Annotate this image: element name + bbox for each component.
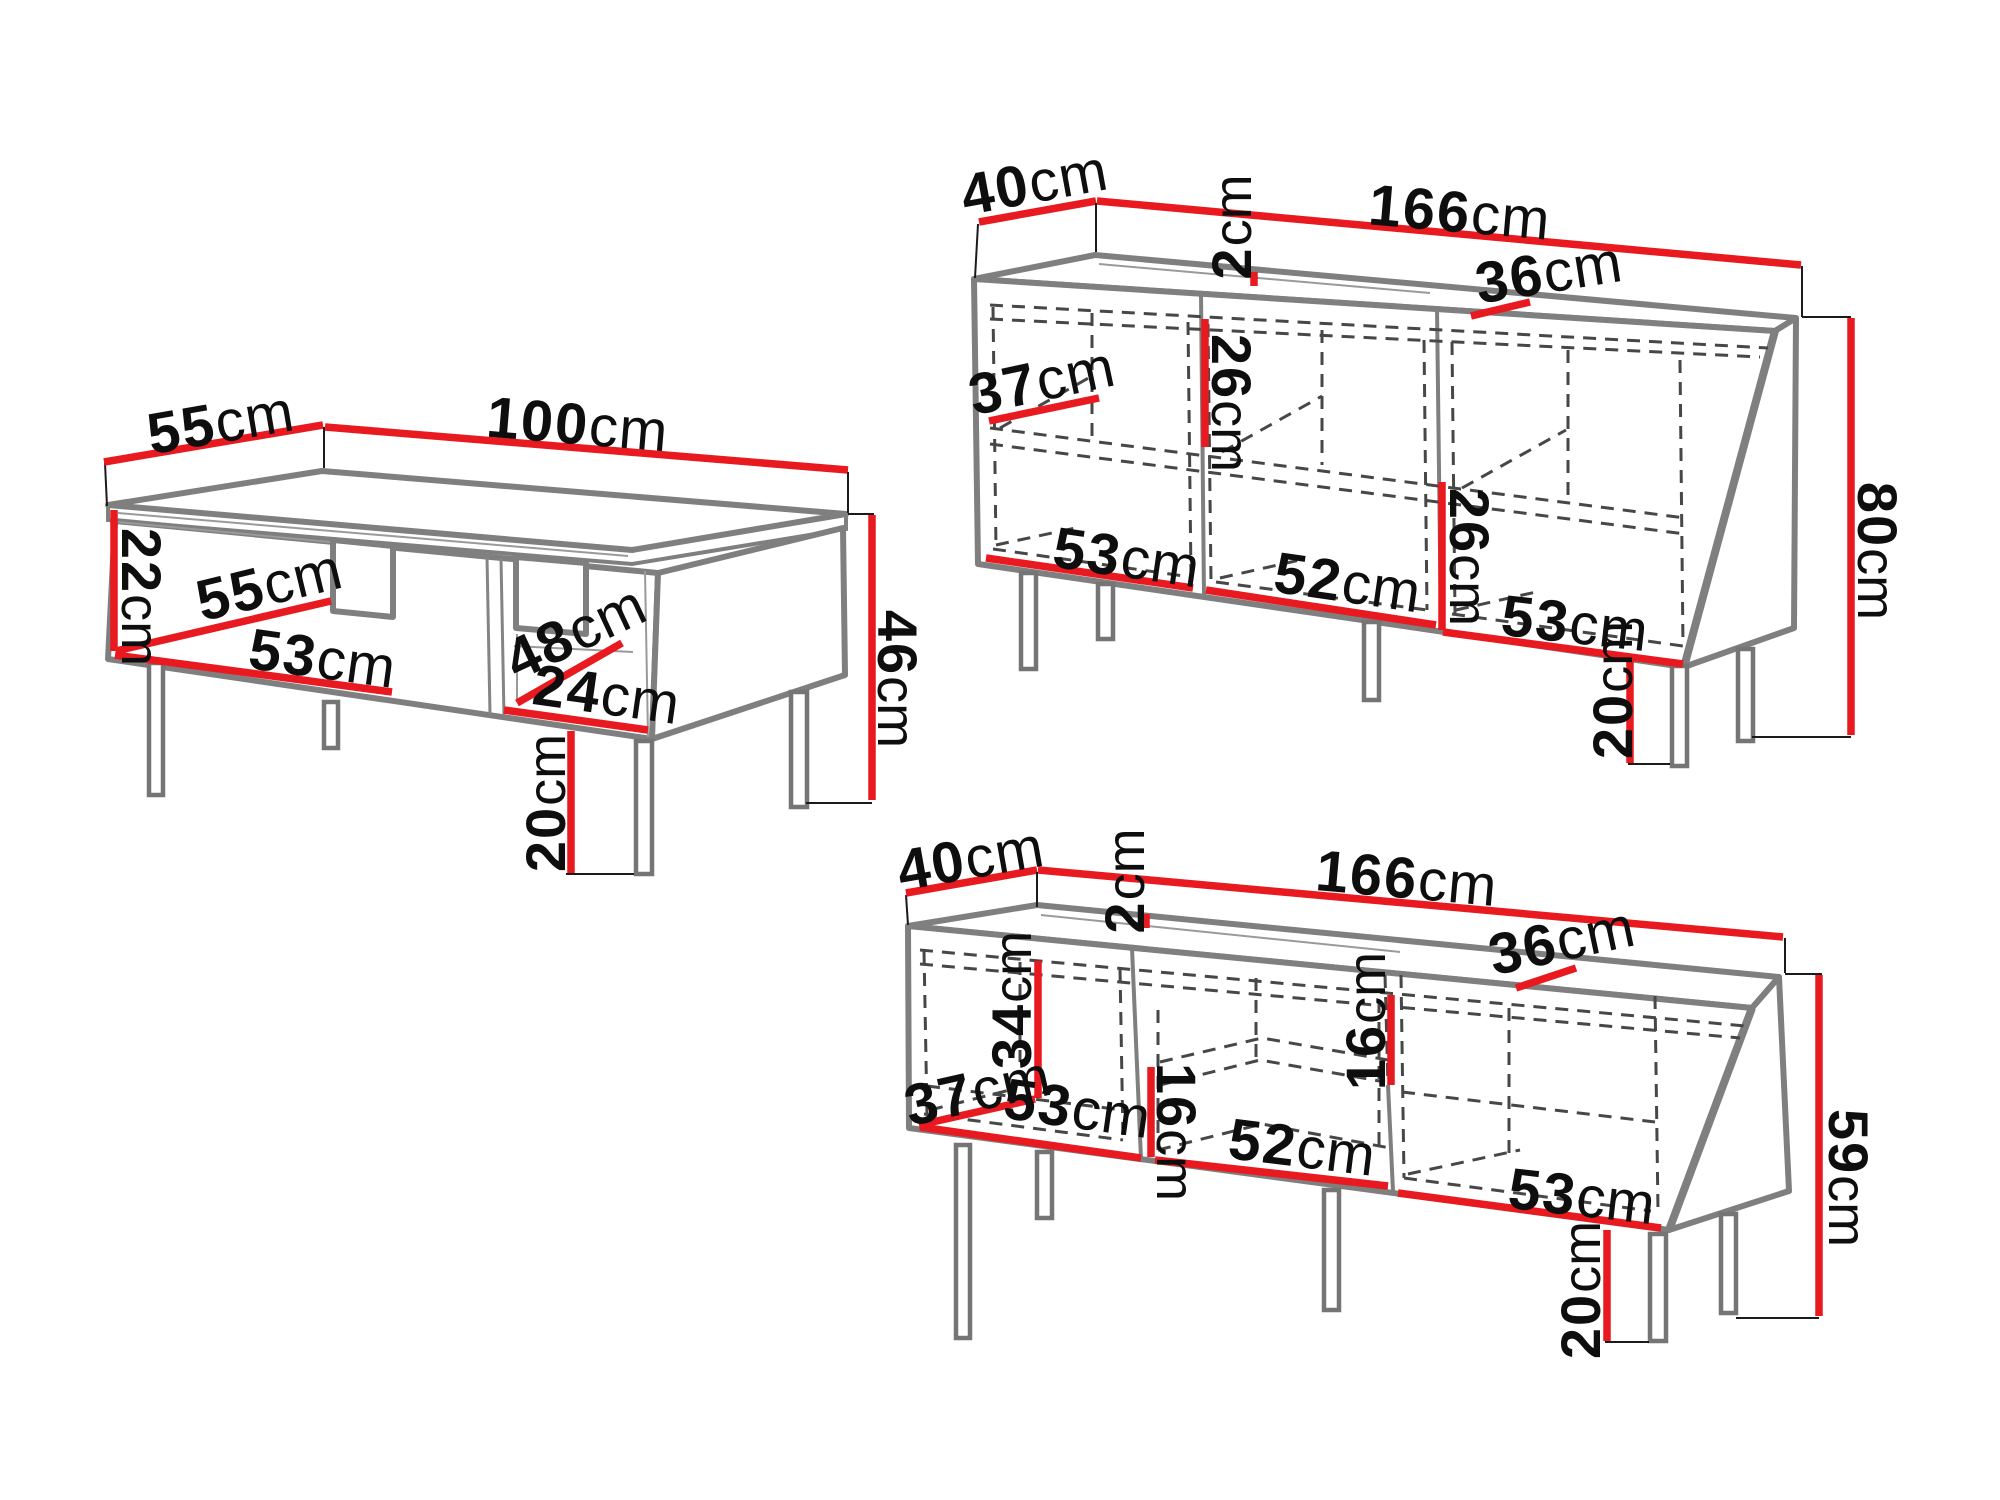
svg-text:59cm: 59cm [1817,1109,1880,1247]
svg-text:2cm: 2cm [1093,828,1156,933]
svg-text:80cm: 80cm [1846,482,1909,620]
svg-text:22cm: 22cm [110,528,173,666]
svg-text:16cm: 16cm [1145,1063,1208,1201]
svg-text:2cm: 2cm [1200,174,1263,279]
svg-text:46cm: 46cm [866,610,929,748]
svg-text:26cm: 26cm [1200,334,1263,472]
svg-text:26cm: 26cm [1438,488,1501,626]
svg-text:20cm: 20cm [1581,621,1644,759]
svg-text:16cm: 16cm [1334,952,1397,1090]
svg-text:20cm: 20cm [1549,1221,1612,1359]
svg-text:20cm: 20cm [514,734,577,872]
